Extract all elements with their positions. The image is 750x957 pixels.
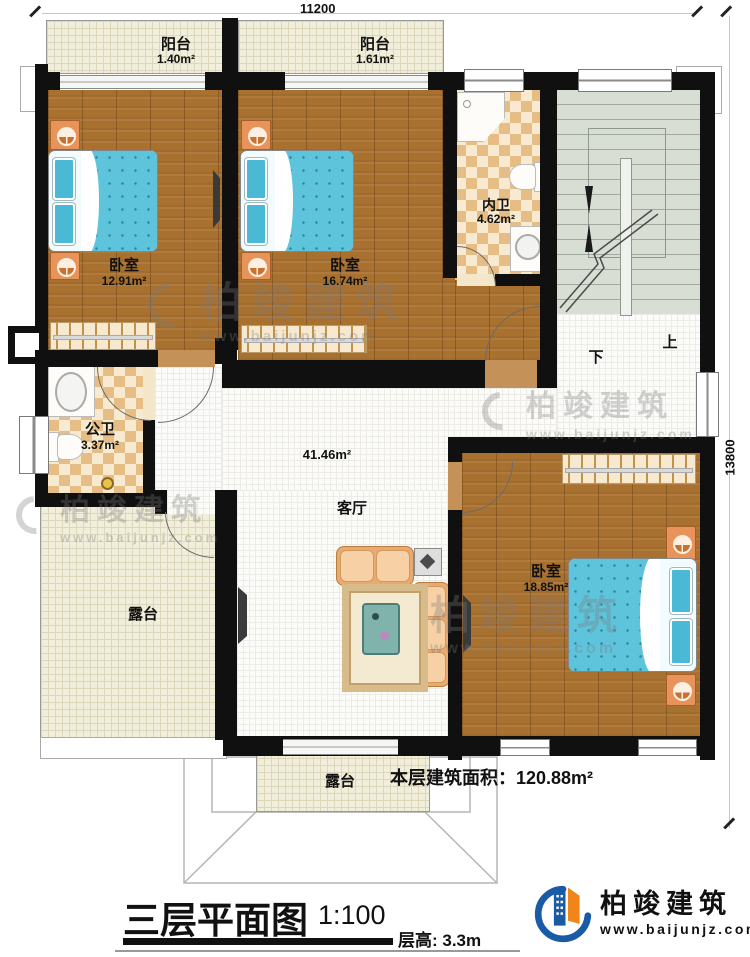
brand-logo: 柏竣建筑 www.baijunjz.com [534, 884, 750, 944]
drawing-scale: 1:100 [318, 900, 386, 931]
stair-break-line [0, 0, 750, 957]
dimension-top: 11200 [300, 1, 335, 16]
terrace-bottom-label: 露台 [325, 774, 355, 791]
title-underline-thick [123, 938, 393, 945]
bedroom3-window-a [500, 739, 550, 756]
bedroom3-door [448, 462, 462, 510]
terrace-left-label: 露台 [128, 607, 158, 624]
stairs-up-label: 上 [662, 335, 677, 352]
floor-area-summary: 本层建筑面积：120.88m² [390, 764, 593, 790]
balcony1-sliding-door [60, 75, 205, 89]
publicbath-label: 公卫 [85, 422, 115, 439]
brand-logo-icon [534, 884, 592, 944]
brand-url: www.baijunjz.com [600, 921, 750, 937]
balcony2-sliding-door [285, 75, 428, 89]
floor-height-label: 层高: 3.3m [398, 926, 481, 951]
bedroom1-door [158, 350, 215, 367]
drawing-title: 三层平面图 [123, 890, 308, 944]
bedroom2-label: 卧室 [330, 258, 360, 275]
bedroom3-area: 18.85m² [524, 581, 569, 594]
brand-name: 柏竣建筑 [600, 891, 750, 918]
bedroom1-area: 12.91m² [102, 275, 147, 288]
publicbath-window [19, 416, 49, 474]
corridor-window [696, 372, 719, 437]
floor-plan-canvas: 柏竣建筑 www.baijunjz.com 柏竣建筑 www.baijunjz.… [0, 0, 750, 957]
ensuite-window [464, 69, 524, 92]
bedroom2-door [485, 360, 537, 388]
stair-window [578, 69, 672, 92]
balcony1-area: 1.40m² [157, 53, 195, 66]
bedroom3-label: 卧室 [531, 564, 561, 581]
bedroom2-area: 16.74m² [323, 275, 368, 288]
living-area: 41.46m² [303, 448, 351, 462]
bedroom3-window-b [638, 739, 697, 756]
dimension-right: 13800 [723, 428, 738, 488]
terrace-door [167, 490, 215, 514]
bedroom1-label: 卧室 [109, 258, 139, 275]
ensuite-area: 4.62m² [477, 213, 515, 226]
balcony2-area: 1.61m² [356, 53, 394, 66]
terrace-sliding-door [283, 739, 398, 755]
stairs-down-label: 下 [588, 350, 603, 367]
living-label: 客厅 [337, 501, 367, 518]
publicbath-area: 3.37m² [81, 439, 119, 452]
